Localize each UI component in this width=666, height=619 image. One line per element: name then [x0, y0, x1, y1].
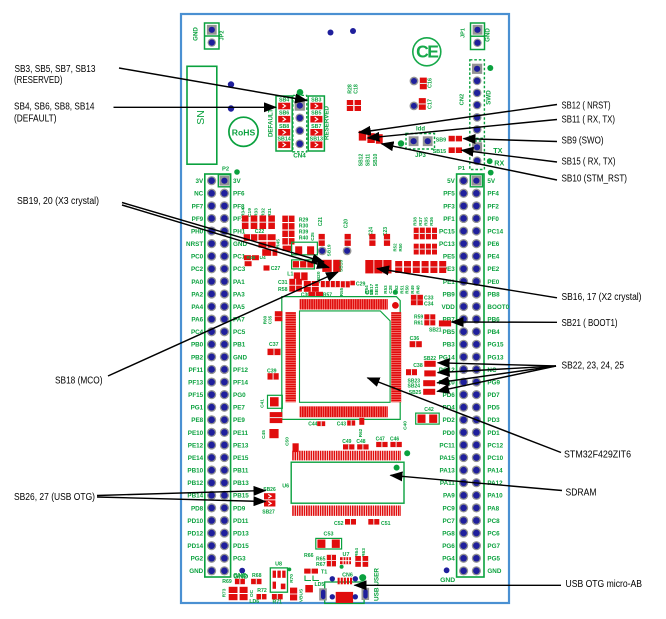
svg-text:LD5: LD5: [314, 582, 324, 588]
svg-text:PD8: PD8: [191, 505, 204, 512]
svg-text:SB26, 27 (USB OTG): SB26, 27 (USB OTG): [14, 492, 95, 503]
svg-text:C31: C31: [278, 280, 288, 286]
svg-text:R46: R46: [247, 255, 256, 261]
svg-text:GND: GND: [440, 577, 455, 584]
svg-text:R35: R35: [424, 217, 430, 226]
svg-text:R52: R52: [393, 243, 398, 252]
svg-text:PF14: PF14: [233, 379, 249, 386]
svg-text:PE12: PE12: [188, 442, 204, 449]
svg-text:USB OTG micro-AB: USB OTG micro-AB: [566, 579, 643, 590]
svg-text:C21: C21: [318, 217, 324, 226]
svg-text:C38: C38: [413, 363, 423, 369]
svg-text:SB6: SB6: [279, 111, 289, 117]
svg-text:PD14: PD14: [187, 543, 203, 550]
svg-text:PD5: PD5: [487, 405, 500, 412]
svg-text:CE: CE: [416, 42, 438, 62]
svg-text:PC1: PC1: [233, 254, 246, 261]
svg-text:C35: C35: [268, 315, 273, 324]
svg-text:PG8: PG8: [442, 530, 455, 537]
svg-text:PA6: PA6: [191, 317, 203, 324]
svg-text:PA0: PA0: [191, 279, 203, 286]
svg-text:PD9: PD9: [233, 505, 246, 512]
svg-text:PE7: PE7: [233, 405, 245, 412]
svg-text:R49: R49: [410, 285, 415, 294]
svg-text:PB9: PB9: [443, 291, 456, 298]
svg-text:PG3: PG3: [233, 556, 246, 563]
svg-text:PG2: PG2: [191, 556, 204, 563]
svg-text:L1: L1: [287, 271, 293, 277]
svg-text:R55: R55: [339, 287, 344, 296]
svg-text:PB14: PB14: [187, 493, 203, 500]
svg-text:PC15: PC15: [439, 228, 455, 235]
svg-text:PG6: PG6: [442, 543, 455, 550]
svg-text:(DEFAULT): (DEFAULT): [14, 113, 57, 124]
svg-text:R64: R64: [354, 548, 360, 557]
svg-text:SB27: SB27: [262, 510, 275, 516]
svg-text:CN4: CN4: [293, 153, 306, 160]
svg-text:R37: R37: [418, 217, 424, 226]
svg-text:OC: OC: [249, 589, 255, 597]
svg-text:SB19: SB19: [327, 244, 333, 256]
svg-text:PG7: PG7: [487, 543, 500, 550]
svg-text:3V: 3V: [233, 178, 242, 185]
svg-text:PF4: PF4: [487, 191, 499, 198]
svg-text:C52: C52: [334, 521, 344, 527]
svg-text:C45: C45: [261, 430, 267, 439]
svg-text:SB12 ( NRST): SB12 ( NRST): [562, 100, 611, 111]
svg-text:PA13: PA13: [440, 468, 456, 475]
svg-text:PC9: PC9: [443, 505, 456, 512]
svg-text:R62: R62: [358, 428, 363, 437]
svg-text:GND: GND: [485, 28, 492, 42]
svg-text:PF0: PF0: [487, 216, 499, 223]
svg-text:R58: R58: [278, 287, 288, 293]
svg-text:SB14: SB14: [277, 136, 290, 142]
svg-text:PF2: PF2: [487, 203, 499, 210]
svg-text:SB21: SB21: [429, 327, 442, 333]
svg-text:R61: R61: [414, 321, 423, 327]
svg-text:C46: C46: [390, 436, 399, 442]
svg-text:PD13: PD13: [233, 530, 249, 537]
svg-text:VDD: VDD: [442, 304, 456, 311]
svg-text:PB11: PB11: [233, 468, 249, 475]
svg-text:SB24: SB24: [408, 384, 421, 390]
svg-text:C40: C40: [403, 421, 409, 430]
svg-text:PA7: PA7: [233, 317, 245, 324]
svg-text:PD15: PD15: [233, 543, 249, 550]
svg-text:PF13: PF13: [188, 379, 204, 386]
svg-text:SB5: SB5: [311, 111, 321, 117]
svg-text:PF6: PF6: [233, 191, 245, 198]
svg-text:C48: C48: [356, 439, 365, 445]
svg-text:C18: C18: [354, 84, 360, 94]
svg-text:R69: R69: [222, 579, 232, 585]
svg-text:R48: R48: [416, 285, 421, 294]
svg-text:5V: 5V: [447, 178, 456, 185]
svg-text:C37: C37: [269, 342, 279, 348]
svg-text:C44: C44: [308, 421, 317, 427]
svg-text:R45: R45: [276, 239, 282, 248]
svg-text:DEFAULT: DEFAULT: [267, 109, 274, 137]
svg-text:PE8: PE8: [191, 417, 203, 424]
svg-text:PF7: PF7: [192, 203, 204, 210]
svg-text:PC6: PC6: [487, 530, 500, 537]
svg-text:PF11: PF11: [188, 367, 203, 374]
svg-text:PG15: PG15: [487, 342, 504, 349]
svg-text:C49: C49: [342, 439, 351, 445]
svg-text:R51: R51: [399, 285, 404, 294]
svg-text:PD0: PD0: [443, 430, 456, 437]
svg-text:SB3, SB5, SB7, SB13: SB3, SB5, SB7, SB13: [15, 64, 96, 75]
svg-text:U6: U6: [282, 484, 289, 490]
svg-text:P1: P1: [458, 166, 466, 172]
svg-text:PF15: PF15: [188, 392, 204, 399]
svg-text:PE14: PE14: [188, 455, 204, 462]
svg-text:SB9: SB9: [436, 137, 447, 143]
svg-text:U7: U7: [343, 552, 350, 558]
svg-text:PA1: PA1: [233, 279, 245, 286]
svg-text:R63: R63: [361, 548, 367, 557]
svg-text:NRST: NRST: [186, 241, 203, 248]
svg-text:SB19, 20 (X3 crystal): SB19, 20 (X3 crystal): [17, 196, 99, 207]
svg-text:SB9 (SWO): SB9 (SWO): [562, 135, 604, 146]
svg-text:PD6: PD6: [443, 392, 456, 399]
svg-text:PC5: PC5: [233, 329, 246, 336]
svg-text:PA3: PA3: [233, 291, 245, 298]
svg-text:C36: C36: [410, 336, 420, 342]
svg-text:PB1: PB1: [233, 342, 246, 349]
svg-text:PA14: PA14: [487, 468, 503, 475]
svg-text:PG4: PG4: [442, 556, 455, 563]
svg-text:PE9: PE9: [233, 417, 245, 424]
svg-text:PE15: PE15: [233, 455, 249, 462]
svg-text:PD2: PD2: [443, 417, 456, 424]
svg-text:C50: C50: [284, 437, 290, 446]
svg-text:C28: C28: [388, 285, 393, 294]
svg-text:PE6: PE6: [487, 241, 499, 248]
svg-text:T1: T1: [321, 569, 327, 575]
svg-text:Idd: Idd: [416, 127, 425, 133]
svg-text:PA2: PA2: [191, 291, 203, 298]
svg-text:C41: C41: [259, 399, 265, 408]
svg-text:JP2: JP2: [220, 31, 226, 41]
svg-text:PC12: PC12: [487, 442, 503, 449]
svg-text:GND: GND: [193, 27, 200, 41]
svg-text:PD12: PD12: [187, 530, 203, 537]
svg-text:PC3: PC3: [233, 266, 246, 273]
svg-text:SDRAM: SDRAM: [566, 487, 597, 498]
svg-text:U8: U8: [275, 561, 282, 567]
svg-text:PD7: PD7: [487, 392, 500, 399]
svg-text:SB3: SB3: [311, 98, 321, 104]
svg-text:NC: NC: [194, 191, 204, 198]
svg-text:R50: R50: [405, 285, 410, 294]
svg-text:PG14: PG14: [439, 354, 456, 361]
svg-text:JP3: JP3: [415, 153, 426, 159]
svg-text:VBUS: VBUS: [298, 588, 304, 602]
svg-text:PB12: PB12: [187, 480, 203, 487]
svg-text:PC14: PC14: [487, 228, 503, 235]
svg-text:PC8: PC8: [487, 518, 500, 525]
svg-text:PD11: PD11: [233, 518, 249, 525]
svg-text:STM32F429ZIT6: STM32F429ZIT6: [564, 450, 631, 461]
svg-text:SWD: SWD: [486, 90, 493, 105]
svg-text:3V: 3V: [195, 178, 204, 185]
svg-text:PC10: PC10: [487, 455, 503, 462]
svg-text:R72: R72: [257, 588, 267, 594]
svg-text:PA10: PA10: [487, 493, 503, 500]
svg-text:SB21 ( BOOT1): SB21 ( BOOT1): [562, 318, 618, 329]
svg-text:USB USER: USB USER: [374, 568, 381, 601]
svg-text:RoHS: RoHS: [232, 128, 256, 138]
svg-text:SB10: SB10: [373, 154, 379, 167]
svg-text:PG5: PG5: [487, 556, 500, 563]
svg-text:PA4: PA4: [191, 304, 203, 311]
svg-text:C25: C25: [310, 232, 315, 241]
svg-text:C47: C47: [376, 436, 385, 442]
svg-text:PA8: PA8: [487, 505, 499, 512]
svg-text:PD1: PD1: [487, 430, 500, 437]
svg-text:PB4: PB4: [487, 329, 500, 336]
svg-text:PB15: PB15: [233, 493, 249, 500]
svg-text:GND: GND: [189, 568, 203, 575]
svg-text:SB4, SB6, SB8, SB14: SB4, SB6, SB8, SB14: [14, 102, 95, 113]
svg-text:PB0: PB0: [191, 342, 204, 349]
svg-text:LD6: LD6: [249, 599, 259, 605]
svg-text:SB15: SB15: [433, 149, 447, 155]
svg-text:PB2: PB2: [191, 354, 204, 361]
svg-text:PG1: PG1: [191, 405, 204, 412]
svg-text:PE13: PE13: [233, 442, 249, 449]
svg-text:RX: RX: [494, 159, 504, 168]
svg-text:PE11: PE11: [233, 430, 249, 437]
svg-text:R59: R59: [414, 314, 423, 320]
svg-text:SB15 ( RX, TX): SB15 ( RX, TX): [562, 157, 616, 168]
svg-text:CN6: CN6: [342, 572, 353, 578]
svg-text:(RESERVED): (RESERVED): [14, 75, 63, 86]
svg-text:PA5: PA5: [233, 304, 245, 311]
svg-text:U5: U5: [365, 290, 373, 297]
svg-text:PG0: PG0: [233, 392, 246, 399]
svg-text:PA15: PA15: [440, 455, 456, 462]
svg-text:R53: R53: [383, 285, 388, 294]
svg-text:PC7: PC7: [443, 518, 456, 525]
svg-text:PF5: PF5: [443, 191, 455, 198]
svg-text:P2: P2: [222, 167, 229, 173]
svg-text:GND: GND: [487, 568, 501, 575]
svg-text:PE4: PE4: [487, 254, 499, 261]
svg-text:SB11: SB11: [366, 154, 372, 166]
svg-text:C20: C20: [343, 219, 349, 228]
svg-text:PF3: PF3: [443, 203, 455, 210]
svg-text:PE5: PE5: [443, 254, 455, 261]
svg-text:C53: C53: [324, 531, 334, 537]
svg-text:R67: R67: [316, 562, 326, 568]
svg-text:C43: C43: [337, 421, 346, 427]
svg-text:PD3: PD3: [487, 417, 500, 424]
svg-text:PB3: PB3: [443, 342, 456, 349]
svg-text:R73: R73: [221, 588, 227, 597]
svg-text:PF1: PF1: [443, 216, 455, 223]
svg-text:PD10: PD10: [187, 518, 203, 525]
svg-text:R68: R68: [252, 573, 262, 579]
svg-text:PB13: PB13: [233, 480, 249, 487]
svg-text:SN: SN: [195, 110, 207, 125]
svg-text:C42: C42: [424, 407, 434, 413]
svg-text:C27: C27: [271, 266, 281, 272]
svg-text:PF12: PF12: [233, 367, 249, 374]
svg-text:PB5: PB5: [443, 329, 456, 336]
svg-text:U4: U4: [260, 255, 266, 261]
svg-text:PF9: PF9: [192, 216, 204, 223]
svg-text:R38: R38: [412, 217, 418, 226]
svg-text:RESERVED: RESERVED: [324, 106, 331, 140]
svg-text:GND: GND: [233, 573, 247, 580]
svg-text:SB7: SB7: [311, 124, 321, 130]
svg-text:C16: C16: [428, 78, 434, 88]
svg-text:PE10: PE10: [188, 430, 204, 437]
svg-text:5V: 5V: [487, 178, 496, 185]
svg-text:C51: C51: [381, 521, 391, 527]
svg-text:R70: R70: [289, 574, 295, 583]
svg-text:PA9: PA9: [443, 493, 455, 500]
svg-text:PC11: PC11: [439, 442, 455, 449]
svg-text:SB13: SB13: [310, 136, 323, 142]
svg-text:SB11 ( RX, TX): SB11 ( RX, TX): [562, 115, 616, 126]
svg-text:SB10 (STM_RST): SB10 (STM_RST): [562, 174, 628, 185]
svg-text:R50: R50: [398, 243, 403, 252]
svg-text:R36: R36: [429, 217, 435, 226]
svg-text:SB4: SB4: [279, 98, 289, 104]
svg-text:R66: R66: [304, 553, 314, 559]
svg-text:PB10: PB10: [187, 468, 203, 475]
svg-text:BOOT0: BOOT0: [487, 304, 509, 311]
svg-text:SB18 (MCO): SB18 (MCO): [55, 376, 103, 387]
svg-text:C34: C34: [424, 301, 434, 307]
svg-text:PG13: PG13: [487, 354, 504, 361]
svg-text:PC13: PC13: [439, 241, 455, 248]
svg-text:SB16, 17 (X2 crystal): SB16, 17 (X2 crystal): [562, 292, 642, 303]
svg-text:R71: R71: [273, 599, 283, 605]
svg-text:C17: C17: [428, 99, 434, 109]
svg-text:R40: R40: [299, 235, 309, 241]
svg-text:GND: GND: [233, 354, 247, 361]
svg-text:JP1: JP1: [461, 28, 467, 38]
svg-text:SB18: SB18: [339, 260, 345, 272]
svg-text:PE0: PE0: [487, 279, 499, 286]
svg-text:SB22, 23, 24, 25: SB22, 23, 24, 25: [562, 361, 625, 372]
svg-text:CN2: CN2: [460, 94, 466, 106]
svg-text:PC0: PC0: [191, 254, 204, 261]
svg-text:SB16: SB16: [374, 283, 379, 295]
svg-text:PC2: PC2: [191, 266, 204, 273]
svg-text:SB12: SB12: [358, 154, 364, 167]
svg-text:PB8: PB8: [487, 291, 500, 298]
svg-text:PE2: PE2: [487, 266, 499, 273]
svg-text:SB8: SB8: [279, 124, 289, 130]
